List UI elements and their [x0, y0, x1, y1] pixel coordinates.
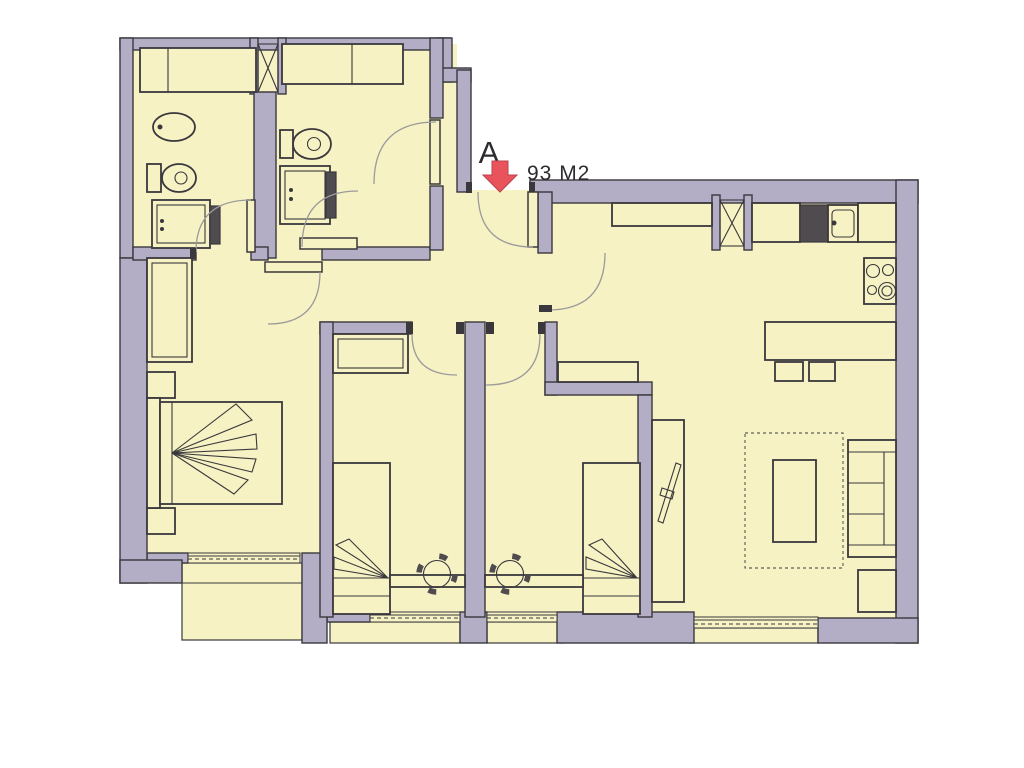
living-room-window	[694, 617, 818, 628]
wall-segment	[545, 382, 652, 395]
toilet-icon	[147, 164, 196, 192]
door-leaf	[265, 262, 322, 272]
floor-plan-drawing: A 93 M2	[0, 0, 1024, 768]
kitchen-sink-icon	[800, 205, 858, 242]
toilet-icon	[280, 129, 331, 159]
floor-plan-page: A 93 M2	[0, 0, 1024, 768]
wall-segment	[430, 38, 443, 118]
master-window	[188, 553, 300, 563]
wall-segment	[320, 322, 333, 617]
tv-cabinet	[652, 420, 684, 602]
entrance-marker: A 93 M2	[479, 135, 591, 192]
single-bed	[583, 463, 640, 614]
wall-segment	[896, 180, 918, 643]
nightstand	[147, 508, 175, 534]
single-bed	[333, 463, 390, 614]
bidet-icon	[153, 113, 195, 141]
door-leaf	[300, 238, 357, 249]
wall-segment	[465, 322, 485, 617]
wall-segment	[430, 186, 443, 250]
door-leaf	[528, 192, 538, 247]
bedroom-1-balcony	[330, 622, 460, 643]
sink-vanity-icon	[152, 200, 220, 248]
desk	[485, 575, 583, 587]
bedroom-2-balcony	[487, 622, 563, 643]
wall-segment	[120, 38, 133, 258]
side-table	[858, 570, 896, 612]
wall-segment	[818, 618, 918, 643]
bathtub-icon	[140, 48, 256, 92]
wall-segment	[120, 258, 147, 583]
wall-segment	[320, 322, 412, 334]
wardrobe	[333, 334, 408, 373]
sofa	[848, 440, 896, 557]
kitchen-counter	[858, 203, 896, 242]
bathtub-icon	[282, 44, 403, 84]
kitchen-counter	[752, 203, 800, 242]
kitchen-counter	[612, 203, 712, 226]
hall-closet	[558, 362, 638, 382]
area-label: 93 M2	[527, 162, 590, 185]
living-room-ledge	[690, 628, 818, 643]
kitchen-island	[765, 322, 896, 360]
nightstand	[147, 372, 175, 398]
cooktop-icon	[864, 258, 896, 304]
wardrobe	[147, 258, 192, 362]
stool	[809, 362, 835, 381]
master-balcony	[182, 563, 302, 640]
double-bed	[147, 398, 282, 508]
wall-segment	[557, 612, 694, 643]
door-leaf	[247, 200, 255, 252]
wall-segment	[457, 70, 471, 192]
wall-segment	[254, 92, 276, 258]
stool	[775, 362, 803, 381]
bedroom-2-window	[487, 612, 557, 622]
wall-segment	[538, 192, 552, 253]
door-leaf	[430, 120, 440, 184]
coffee-table	[773, 460, 816, 542]
wall-segment	[120, 560, 182, 583]
